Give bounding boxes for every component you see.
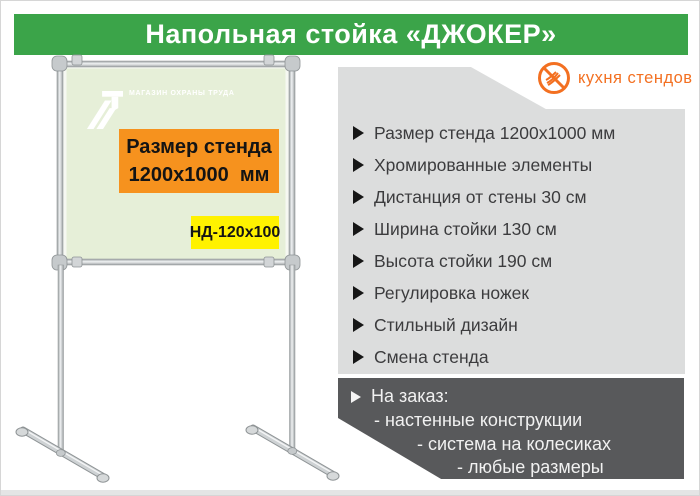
feature-item: Смена стенда — [353, 341, 677, 373]
feature-item: Стильный дизайн — [353, 309, 677, 341]
custom-order-title: На заказ: — [371, 386, 449, 407]
bullet-triangle-icon — [353, 158, 364, 172]
feature-text: Высота стойки 190 см — [374, 251, 552, 272]
feature-item: Дистанция от стены 30 см — [353, 181, 677, 213]
bullet-triangle-icon — [353, 318, 364, 332]
bullet-triangle-icon — [353, 222, 364, 236]
bottom-edge-strip — [1, 490, 699, 495]
brand-logo: кухня стендов — [537, 61, 693, 95]
feature-text: Стильный дизайн — [374, 315, 518, 336]
custom-order-title-row: На заказ: — [338, 378, 684, 409]
brand-name: кухня стендов — [578, 69, 693, 88]
feature-item: Регулировка ножек — [353, 277, 677, 309]
feature-text: Смена стенда — [374, 347, 489, 368]
bullet-triangle-icon — [353, 350, 364, 364]
model-code-text: НД-120х100 — [190, 224, 281, 242]
product-flyer: Напольная стойка «ДЖОКЕР» — [0, 0, 700, 496]
vendor-logo-icon — [85, 85, 123, 135]
stand-size-line2: 1200х1000 мм — [129, 161, 270, 189]
stand-size-line1: Размер стенда — [126, 133, 272, 161]
feature-item: Ширина стойки 130 см — [353, 213, 677, 245]
bullet-triangle-icon — [351, 391, 361, 403]
bullet-triangle-icon — [353, 254, 364, 268]
features-list: Размер стенда 1200х1000 мм Хромированные… — [338, 67, 685, 373]
feature-text: Размер стенда 1200х1000 мм — [374, 123, 615, 144]
bullet-triangle-icon — [353, 126, 364, 140]
stand-legs — [58, 265, 295, 454]
custom-order-item: - система на колесиках — [417, 433, 684, 457]
features-panel: Размер стенда 1200х1000 мм Хромированные… — [338, 67, 685, 374]
stand-size-label: Размер стенда 1200х1000 мм — [119, 129, 279, 193]
custom-order-item: - настенные конструкции — [374, 409, 684, 433]
custom-order-item: - любые размеры — [457, 456, 684, 480]
model-code-label: НД-120х100 — [191, 216, 279, 249]
feature-text: Ширина стойки 130 см — [374, 219, 557, 240]
bullet-triangle-icon — [353, 190, 364, 204]
feature-item: Высота стойки 190 см — [353, 245, 677, 277]
feature-text: Регулировка ножек — [374, 283, 529, 304]
vendor-logo: МАГАЗИН ОХРАНЫ ТРУДА — [85, 85, 235, 135]
feature-text: Хромированные элементы — [374, 155, 592, 176]
feature-item: Хромированные элементы — [353, 149, 677, 181]
bullet-triangle-icon — [353, 286, 364, 300]
feature-text: Дистанция от стены 30 см — [374, 187, 586, 208]
crossed-whisk-icon — [537, 61, 571, 95]
feature-item: Размер стенда 1200х1000 мм — [353, 117, 677, 149]
vendor-logo-text: МАГАЗИН ОХРАНЫ ТРУДА — [129, 90, 235, 97]
